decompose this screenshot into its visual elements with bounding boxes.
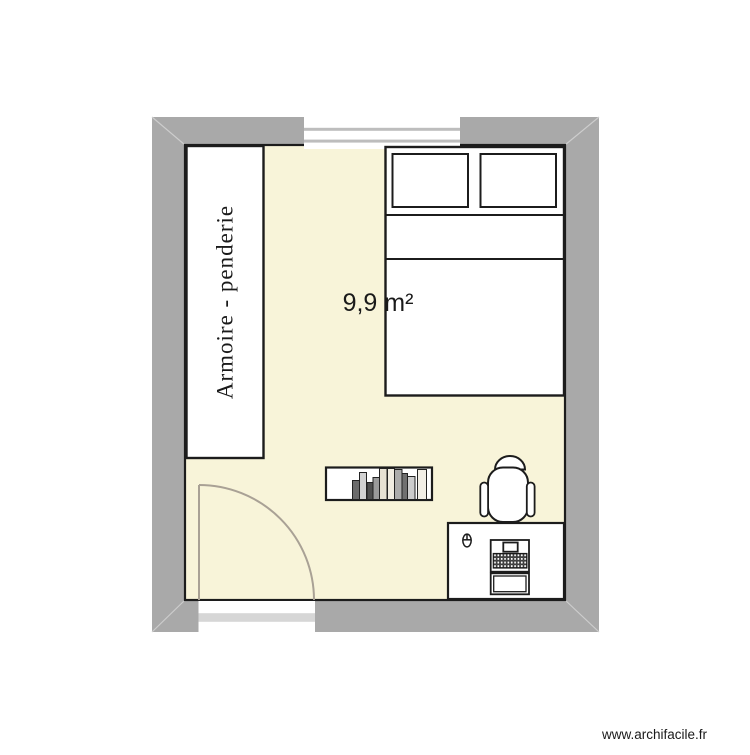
book <box>418 470 427 500</box>
door-opening[interactable] <box>199 601 316 633</box>
window-divider <box>304 140 460 143</box>
room-area-label: 9,9 m² <box>343 289 414 317</box>
book <box>373 478 380 500</box>
keyboard-keys <box>493 554 527 569</box>
book <box>388 469 395 500</box>
double-bed[interactable] <box>386 147 565 396</box>
floor-plan-canvas: Armoire - penderie <box>0 0 750 755</box>
laptop-screen <box>494 576 526 592</box>
wardrobe-label: Armoire - penderie <box>213 205 238 399</box>
mouse <box>463 534 471 547</box>
book <box>402 474 408 500</box>
window-divider <box>304 128 460 131</box>
chair-armrest-right <box>527 483 535 517</box>
book <box>353 481 360 500</box>
window[interactable] <box>304 117 460 149</box>
desk[interactable] <box>448 523 564 599</box>
bed-pillow-left <box>393 154 469 207</box>
chair-armrest-left <box>480 483 488 517</box>
book <box>367 483 373 500</box>
monitor <box>503 543 517 552</box>
door-threshold-gap <box>199 613 316 622</box>
book <box>408 477 416 500</box>
book <box>360 473 367 500</box>
book <box>395 470 403 500</box>
wardrobe[interactable]: Armoire - penderie <box>187 146 264 458</box>
book <box>380 469 388 500</box>
computer <box>491 540 529 594</box>
bed-pillow-right <box>481 154 557 207</box>
chair-seat <box>488 468 528 523</box>
bookshelf[interactable] <box>326 468 432 501</box>
watermark: www.archifacile.fr <box>601 727 708 742</box>
window-frame <box>304 117 460 149</box>
